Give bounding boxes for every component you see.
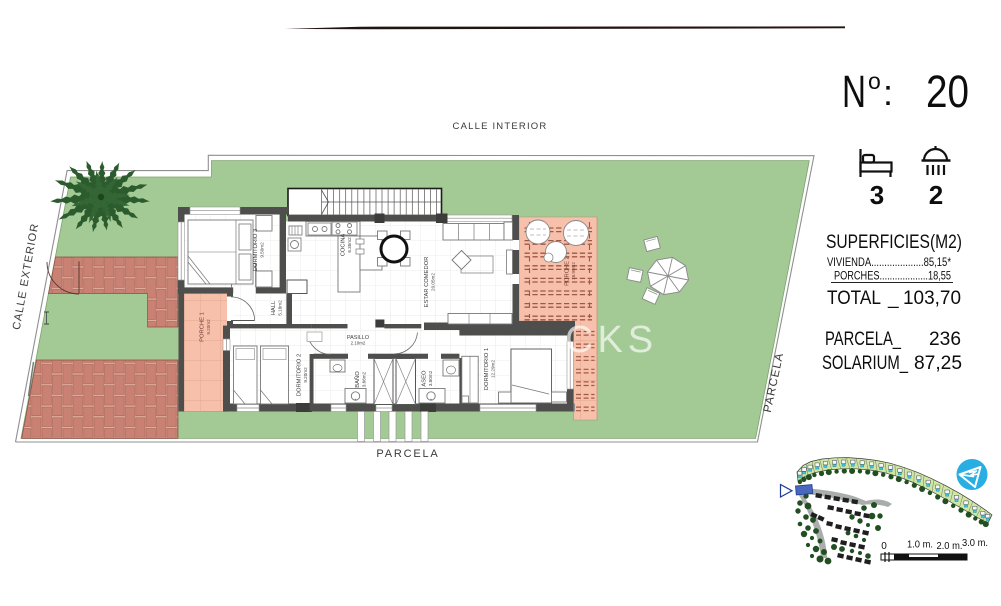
svg-text:2: 2 bbox=[929, 180, 943, 210]
svg-text:CKS: CKS bbox=[565, 319, 658, 361]
svg-text:DORMITORIO 3: DORMITORIO 3 bbox=[253, 229, 259, 271]
svg-text:2.0 m.: 2.0 m. bbox=[937, 541, 963, 552]
svg-text:DORMITORIO 2: DORMITORIO 2 bbox=[297, 354, 303, 396]
svg-text:PORCHES...................18,5: PORCHES...................18,55 bbox=[834, 271, 951, 283]
svg-text:87,25: 87,25 bbox=[914, 353, 962, 374]
svg-text:TOTAL: TOTAL bbox=[827, 288, 881, 309]
svg-text:o: o bbox=[868, 68, 881, 94]
svg-text:12.29m2: 12.29m2 bbox=[491, 360, 496, 378]
svg-text:ASEO: ASEO bbox=[422, 370, 428, 387]
svg-text:6.35m2: 6.35m2 bbox=[347, 237, 352, 253]
svg-text:9.20m2: 9.20m2 bbox=[303, 367, 308, 383]
svg-text:9.50m2: 9.50m2 bbox=[260, 242, 265, 258]
svg-text:3: 3 bbox=[870, 180, 884, 210]
svg-text:SUPERFICIES(M2): SUPERFICIES(M2) bbox=[826, 232, 962, 253]
svg-text:3.66m2: 3.66m2 bbox=[362, 371, 367, 387]
svg-text:CALLE EXTERIOR: CALLE EXTERIOR bbox=[11, 222, 42, 331]
svg-text:DORMITORIO 1: DORMITORIO 1 bbox=[484, 348, 490, 390]
svg-text:_: _ bbox=[887, 288, 899, 309]
svg-text:1.0 m.: 1.0 m. bbox=[907, 540, 933, 551]
svg-text:5.18m2: 5.18m2 bbox=[278, 300, 283, 316]
svg-text:CALLE INTERIOR: CALLE INTERIOR bbox=[453, 121, 548, 132]
svg-text:2.10m2: 2.10m2 bbox=[351, 341, 366, 346]
svg-text:9.20m2: 9.20m2 bbox=[206, 319, 211, 335]
svg-text::: : bbox=[883, 72, 893, 113]
svg-text:20: 20 bbox=[926, 66, 969, 117]
svg-text:N: N bbox=[842, 66, 866, 117]
svg-text:PORCHE 1: PORCHE 1 bbox=[200, 312, 206, 342]
svg-text:103,70: 103,70 bbox=[903, 288, 961, 309]
svg-text:BAÑO: BAÑO bbox=[354, 371, 361, 388]
svg-text:3.80m2: 3.80m2 bbox=[428, 370, 433, 386]
svg-text:VIVIENDA....................85: VIVIENDA....................85,15* bbox=[827, 257, 951, 269]
svg-text:ESTAR COMEDOR: ESTAR COMEDOR bbox=[424, 257, 430, 308]
svg-text:236: 236 bbox=[929, 329, 961, 350]
svg-text:PORCHE 2: PORCHE 2 bbox=[565, 256, 571, 286]
svg-text:SOLARIUM_: SOLARIUM_ bbox=[822, 353, 908, 374]
svg-text:0: 0 bbox=[881, 541, 887, 552]
svg-text:PARCELA: PARCELA bbox=[376, 448, 439, 460]
svg-text:20.05m2: 20.05m2 bbox=[431, 273, 436, 291]
svg-text:HALL: HALL bbox=[271, 300, 277, 315]
svg-text:3.0 m.: 3.0 m. bbox=[962, 538, 988, 549]
svg-text:PARCELA_: PARCELA_ bbox=[825, 329, 901, 350]
svg-text:18.95m2: 18.95m2 bbox=[571, 262, 576, 280]
svg-text:COCINA: COCINA bbox=[341, 234, 347, 257]
